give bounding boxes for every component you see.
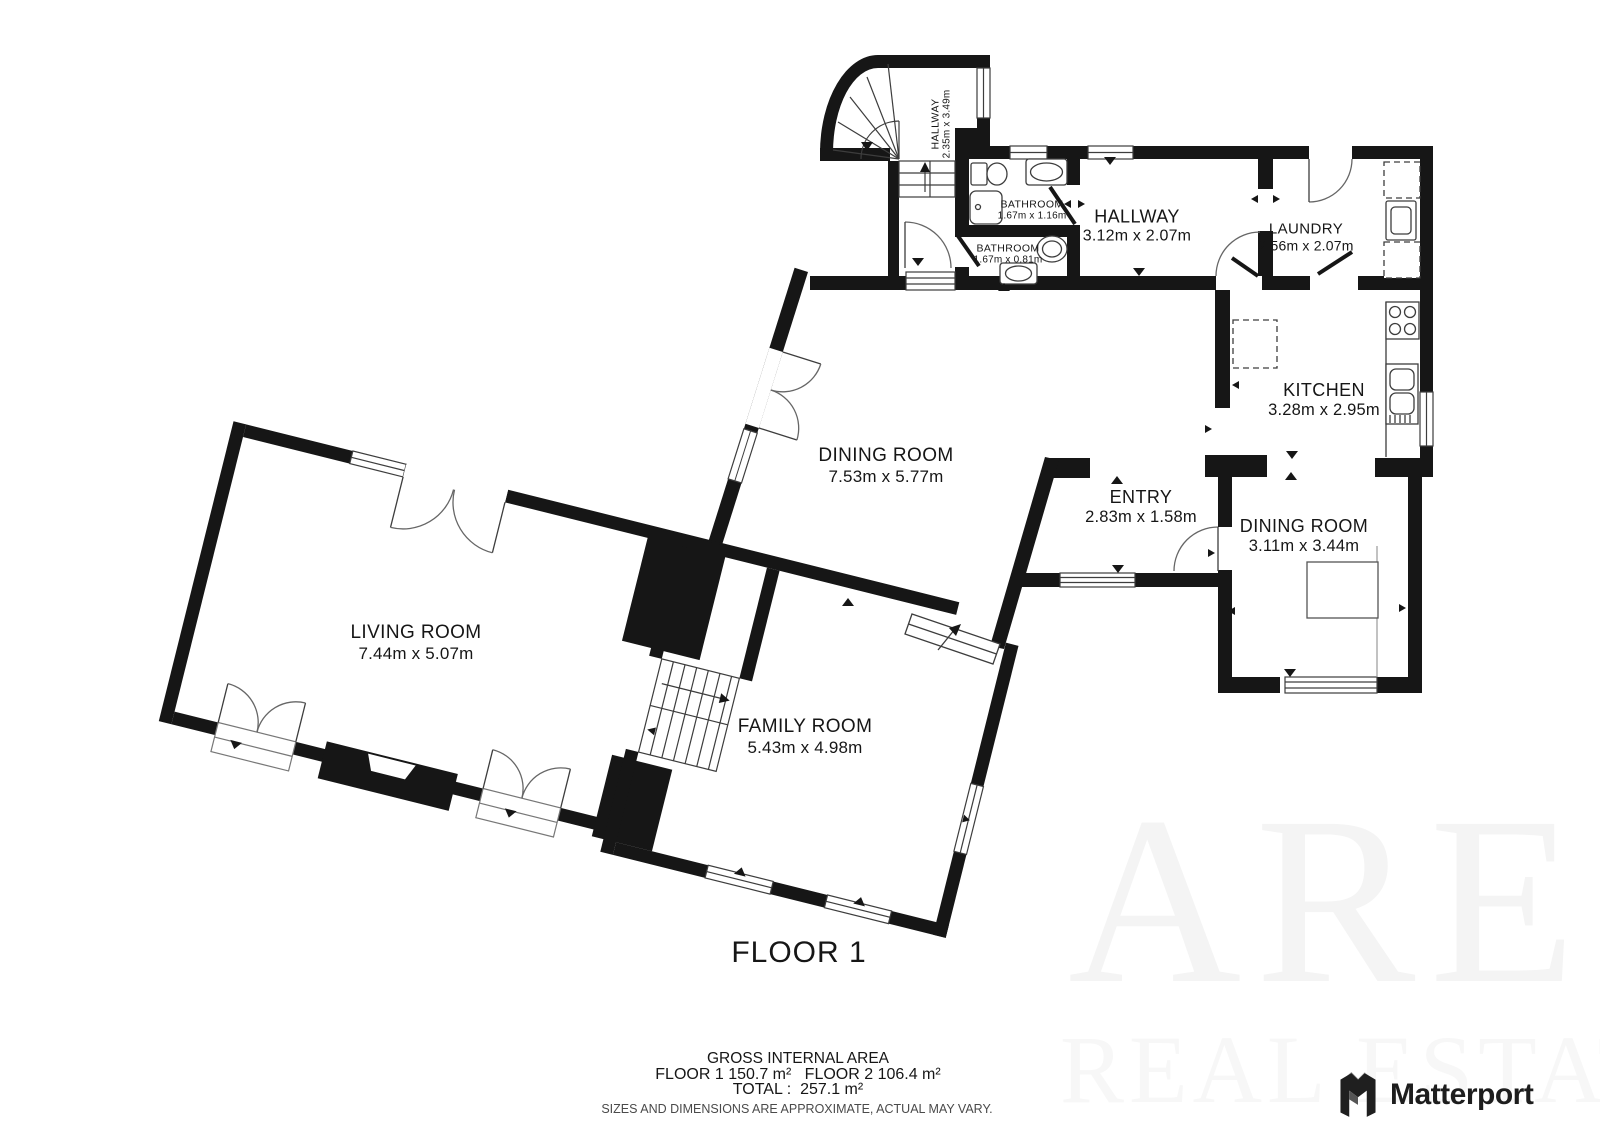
floorplan-page: ARE REAL ESTATE xyxy=(0,0,1600,1131)
room-label-hallway-stairs: HALLWAY 2.35m x 3.49m xyxy=(930,90,953,159)
floor-title: FLOOR 1 xyxy=(731,936,866,970)
room-label-bathroom-1: BATHROOM 1.67m x 1.16m xyxy=(998,199,1067,222)
room-label-bathroom-2: BATHROOM 1.67m x 0.81m xyxy=(974,243,1043,266)
room-label-laundry: LAUNDRY 2.56m x 2.07m xyxy=(1258,221,1353,254)
footer-total-area: TOTAL : 257.1 m² xyxy=(733,1081,863,1099)
family-room-stairs xyxy=(639,659,740,772)
room-label-hallway: HALLWAY 3.12m x 2.07m xyxy=(1083,207,1191,246)
room-label-living-room: LIVING ROOM 7.44m x 5.07m xyxy=(350,622,481,664)
room-label-entry: ENTRY 2.83m x 1.58m xyxy=(1085,487,1197,527)
footer-disclaimer: SIZES AND DIMENSIONS ARE APPROXIMATE, AC… xyxy=(601,1102,992,1116)
room-label-dining-room-2: DINING ROOM 3.11m x 3.44m xyxy=(1240,516,1368,556)
room-label-dining-room: DINING ROOM 7.53m x 5.77m xyxy=(818,445,953,487)
left-wing xyxy=(154,421,1025,938)
room-label-family-room: FAMILY ROOM 5.43m x 4.98m xyxy=(738,716,873,758)
matterport-branding: Matterport xyxy=(1336,1072,1533,1118)
left-wing-windows xyxy=(210,435,1025,938)
room-label-kitchen: KITCHEN 3.28m x 2.95m xyxy=(1268,380,1380,420)
left-wing-walls xyxy=(154,421,1025,938)
matterport-wordmark: Matterport xyxy=(1390,1078,1533,1112)
dining-room-wall-openings xyxy=(728,348,783,483)
matterport-logo-icon xyxy=(1336,1072,1380,1118)
